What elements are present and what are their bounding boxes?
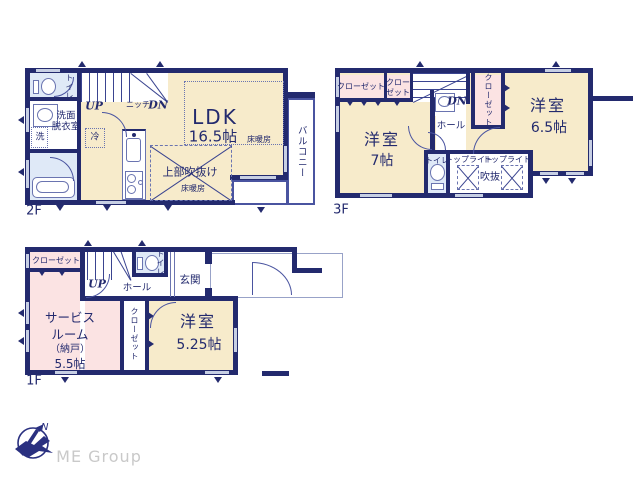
stair-treads xyxy=(81,73,133,102)
label-closet-1f-b: クローゼット xyxy=(130,307,138,361)
window-marker xyxy=(26,254,29,268)
vent-marker xyxy=(164,205,172,211)
window-marker xyxy=(545,69,571,72)
window-marker xyxy=(55,371,77,374)
closet-door-marker xyxy=(38,270,46,276)
balcony-extension xyxy=(232,180,288,205)
closet-door-marker xyxy=(346,100,354,106)
toplight-box xyxy=(501,165,523,190)
label-service-3: （納戸） xyxy=(50,345,90,355)
window-marker xyxy=(566,172,584,175)
label-room7-size: 7帖 xyxy=(371,154,394,168)
vent-marker xyxy=(18,309,24,317)
wall xyxy=(262,371,289,376)
label-ldk: LDK xyxy=(192,107,238,127)
label-room525: 洋室 xyxy=(180,314,216,330)
window-marker xyxy=(284,146,287,172)
label-toplight-right: トップライト xyxy=(483,156,531,164)
vent-marker xyxy=(257,207,265,213)
label-room525-size: 5.25帖 xyxy=(176,338,221,352)
label-room65-size: 6.5帖 xyxy=(531,121,567,135)
label-upper-void: 上部吹抜け xyxy=(163,167,218,178)
window-marker xyxy=(540,172,558,175)
window-marker xyxy=(36,69,60,72)
wall xyxy=(120,301,124,370)
label-room7: 洋室 xyxy=(364,132,400,148)
vent-marker xyxy=(18,168,24,176)
label-washer: 洗 xyxy=(35,134,44,143)
company-logo-text: ME Group xyxy=(56,449,142,465)
label-closet-1f-a: クローゼット xyxy=(32,257,80,265)
window-marker xyxy=(360,194,392,197)
kitchen-sink-icon xyxy=(126,138,141,162)
wall xyxy=(30,149,77,153)
entry-step-line xyxy=(170,252,171,297)
wall xyxy=(205,288,212,301)
label-floor-2f: 2F xyxy=(26,205,42,218)
wall xyxy=(292,268,322,273)
stove-icon xyxy=(125,171,143,199)
closet-door-marker xyxy=(360,100,368,106)
window-marker xyxy=(26,108,29,132)
closet-door-marker xyxy=(148,340,154,348)
wall xyxy=(77,99,81,200)
window-marker xyxy=(240,176,276,179)
label-ldk-size: 16.5帖 xyxy=(189,130,237,145)
window-marker xyxy=(336,106,339,132)
vent-marker xyxy=(138,240,146,246)
wall xyxy=(25,268,82,272)
label-fridge: 冷 xyxy=(90,134,99,143)
wall xyxy=(205,252,212,264)
vent-marker xyxy=(552,61,560,67)
vent-marker xyxy=(542,178,550,184)
wall xyxy=(77,71,81,101)
window-marker xyxy=(96,201,126,204)
vent-marker xyxy=(18,116,24,124)
label-service-1: サービス xyxy=(45,312,95,325)
vent-marker xyxy=(156,61,164,67)
vent-marker xyxy=(416,61,424,67)
vent-marker xyxy=(103,205,111,211)
label-closet-b2: ゼット xyxy=(386,89,410,97)
label-dn-3f: DN xyxy=(447,96,467,107)
label-service-size: 5.5帖 xyxy=(54,358,85,370)
label-washroom-1: 洗面 xyxy=(56,111,75,121)
label-ldk-heating: 床暖房 xyxy=(247,136,271,144)
label-toilet-1f: トイレ xyxy=(156,250,164,277)
wall xyxy=(410,71,413,102)
vent-marker xyxy=(18,337,24,345)
window-marker xyxy=(205,371,229,374)
faucet-icon xyxy=(132,133,136,137)
label-dn-2f: DN xyxy=(148,100,168,111)
window-marker xyxy=(26,330,29,352)
vent-marker xyxy=(56,205,64,211)
window-marker xyxy=(26,302,29,324)
wall xyxy=(593,96,633,101)
window-marker xyxy=(26,160,29,188)
label-hall-1f: ホール xyxy=(123,283,152,293)
vent-marker xyxy=(214,377,222,383)
label-void-3f: 吹抜 xyxy=(480,173,500,183)
vent-marker xyxy=(84,240,92,246)
label-service-2: ルーム xyxy=(51,329,88,342)
closet-door-marker xyxy=(504,84,510,92)
outside-notch xyxy=(532,176,588,193)
floorplan-sheet: トイレ 洗面 脱衣室 洗 冷 UP ニッチ DN LDK 16.5帖 床暖房 上… xyxy=(0,0,640,480)
label-washroom-2: 脱衣室 xyxy=(52,122,81,132)
window-marker xyxy=(455,194,483,197)
toplight-box xyxy=(457,165,479,190)
label-niche: ニッチ xyxy=(126,101,150,109)
window-marker xyxy=(234,328,237,352)
entry-step-line xyxy=(174,252,175,297)
closet-door-marker xyxy=(58,270,66,276)
label-floor-1f: 1F xyxy=(26,375,42,388)
label-room65: 洋室 xyxy=(530,98,566,114)
vent-marker xyxy=(61,377,69,383)
vent-marker xyxy=(78,61,86,67)
label-entrance: 玄関 xyxy=(180,275,201,286)
label-balcony: バルコニー xyxy=(296,126,306,179)
wall xyxy=(80,296,238,301)
wall xyxy=(287,92,315,98)
label-hall-3f: ホール xyxy=(437,121,466,131)
wall xyxy=(430,90,434,116)
wall xyxy=(80,250,85,301)
label-floor-3f: 3F xyxy=(333,204,349,217)
label-up-2f: UP xyxy=(85,101,103,112)
label-closet-a: クローゼット xyxy=(337,83,385,91)
toilet-fixture-icon xyxy=(429,164,446,192)
vent-marker xyxy=(568,178,576,184)
kitchen-counter xyxy=(122,129,146,200)
wall xyxy=(25,68,288,73)
wall xyxy=(501,71,505,129)
compass-north-label: N xyxy=(41,422,49,433)
window-marker xyxy=(589,140,592,166)
label-up-1f: UP xyxy=(88,279,106,290)
label-closet-c: クローゼット xyxy=(484,73,492,127)
label-toilet-2f: トイレ xyxy=(65,74,73,101)
closet-door-marker xyxy=(393,100,401,106)
closet-door-marker xyxy=(374,100,382,106)
closet-door-marker xyxy=(504,104,510,112)
wall xyxy=(471,71,475,129)
label-void-heating: 床暖房 xyxy=(181,185,205,193)
label-closet-b1: クロー xyxy=(386,79,410,87)
